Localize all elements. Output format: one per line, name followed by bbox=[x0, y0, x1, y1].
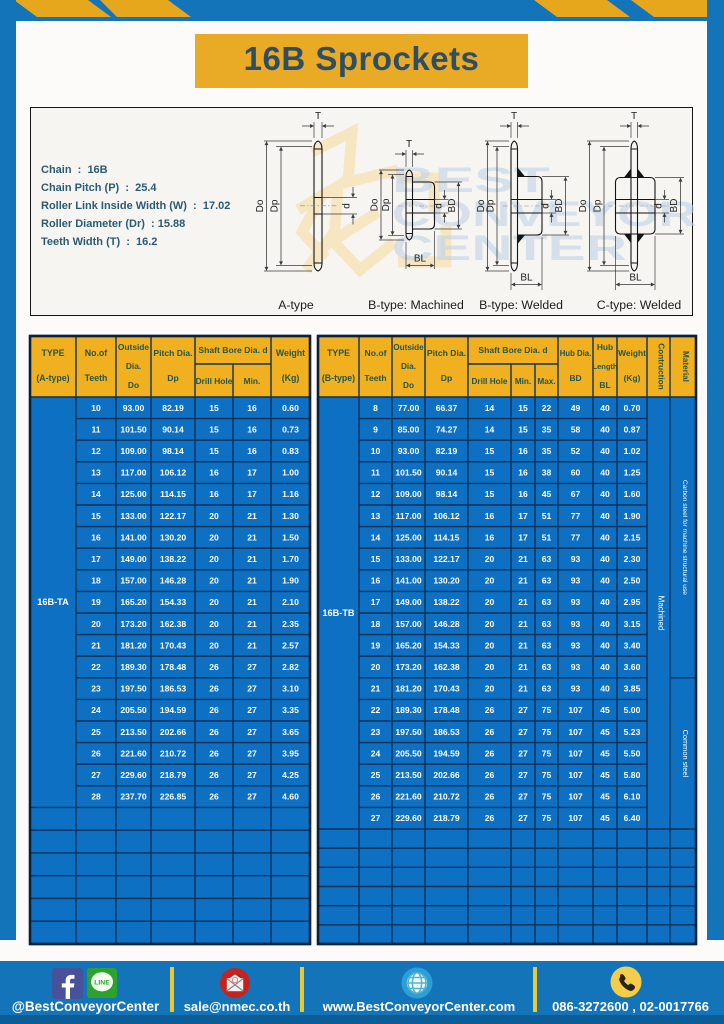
svg-text:2.82: 2.82 bbox=[282, 662, 299, 672]
svg-text:Do: Do bbox=[128, 380, 139, 390]
svg-text:1.16: 1.16 bbox=[282, 489, 299, 499]
svg-text:15: 15 bbox=[209, 403, 219, 413]
svg-text:0.83: 0.83 bbox=[282, 446, 299, 456]
svg-text:17: 17 bbox=[518, 532, 528, 542]
svg-text:BL: BL bbox=[520, 273, 533, 284]
svg-text:(Kg): (Kg) bbox=[282, 373, 300, 383]
svg-text:16: 16 bbox=[518, 468, 528, 478]
svg-text:63: 63 bbox=[542, 576, 552, 586]
svg-text:21: 21 bbox=[247, 511, 257, 521]
svg-text:107: 107 bbox=[568, 792, 583, 802]
svg-text:15: 15 bbox=[485, 446, 495, 456]
svg-text:75: 75 bbox=[542, 705, 552, 715]
svg-text:19: 19 bbox=[91, 597, 101, 607]
svg-text:21: 21 bbox=[247, 576, 257, 586]
svg-text:66.37: 66.37 bbox=[436, 403, 458, 413]
svg-text:26: 26 bbox=[209, 792, 219, 802]
svg-text:130.20: 130.20 bbox=[433, 576, 460, 586]
svg-text:2.35: 2.35 bbox=[282, 619, 299, 629]
svg-text:101.50: 101.50 bbox=[120, 424, 147, 434]
svg-text:157.00: 157.00 bbox=[395, 619, 422, 629]
svg-text:Dp: Dp bbox=[270, 199, 281, 212]
svg-text:117.00: 117.00 bbox=[396, 511, 422, 521]
svg-text:27: 27 bbox=[247, 792, 257, 802]
svg-text:186.53: 186.53 bbox=[433, 727, 460, 737]
svg-text:18: 18 bbox=[371, 619, 381, 629]
svg-text:45: 45 bbox=[600, 727, 610, 737]
svg-text:Do: Do bbox=[403, 381, 414, 390]
svg-text:2.57: 2.57 bbox=[282, 640, 299, 650]
svg-text:162.38: 162.38 bbox=[433, 662, 460, 672]
svg-text:20: 20 bbox=[485, 640, 495, 650]
svg-text:No.of: No.of bbox=[85, 348, 108, 358]
svg-text:20: 20 bbox=[485, 619, 495, 629]
svg-text:C-type: Welded: C-type: Welded bbox=[597, 298, 682, 312]
svg-text:26: 26 bbox=[485, 792, 495, 802]
svg-text:93: 93 bbox=[571, 640, 581, 650]
svg-text:3.65: 3.65 bbox=[282, 727, 299, 737]
svg-text:B-type: Welded: B-type: Welded bbox=[479, 298, 563, 312]
svg-text:No.of: No.of bbox=[365, 348, 387, 358]
svg-text:106.12: 106.12 bbox=[433, 511, 460, 521]
svg-text:26: 26 bbox=[209, 727, 219, 737]
svg-text:20: 20 bbox=[209, 532, 219, 542]
svg-text:3.15: 3.15 bbox=[624, 619, 641, 629]
svg-text:10: 10 bbox=[91, 403, 101, 413]
svg-text:107: 107 bbox=[568, 748, 583, 758]
svg-text:221.60: 221.60 bbox=[120, 748, 147, 758]
svg-text:165.20: 165.20 bbox=[120, 597, 147, 607]
svg-text:82.19: 82.19 bbox=[436, 446, 458, 456]
svg-text:27: 27 bbox=[247, 770, 257, 780]
svg-text:BD: BD bbox=[669, 199, 680, 213]
svg-text:20: 20 bbox=[209, 511, 219, 521]
svg-text:11: 11 bbox=[371, 468, 380, 478]
svg-text:107: 107 bbox=[568, 705, 583, 715]
svg-text:14: 14 bbox=[485, 424, 495, 434]
svg-text:40: 40 bbox=[600, 576, 610, 586]
svg-text:21: 21 bbox=[518, 662, 528, 672]
svg-text:40: 40 bbox=[600, 532, 610, 542]
svg-text:Common steel: Common steel bbox=[681, 730, 690, 778]
svg-text:226.85: 226.85 bbox=[160, 792, 187, 802]
svg-text:26: 26 bbox=[209, 748, 219, 758]
svg-text:1.50: 1.50 bbox=[282, 532, 299, 542]
svg-text:5.80: 5.80 bbox=[624, 770, 641, 780]
svg-text:15: 15 bbox=[485, 489, 495, 499]
svg-text:3.85: 3.85 bbox=[624, 684, 641, 694]
svg-text:Drill Hole: Drill Hole bbox=[472, 377, 508, 386]
svg-text:22: 22 bbox=[542, 403, 552, 413]
svg-text:107: 107 bbox=[568, 727, 583, 737]
svg-text:T: T bbox=[315, 111, 321, 122]
svg-text:154.33: 154.33 bbox=[160, 597, 187, 607]
svg-text:20: 20 bbox=[91, 619, 101, 629]
svg-text:170.43: 170.43 bbox=[160, 640, 187, 650]
svg-text:138.22: 138.22 bbox=[160, 554, 187, 564]
svg-text:141.00: 141.00 bbox=[120, 532, 147, 542]
svg-text:149.00: 149.00 bbox=[120, 554, 147, 564]
svg-text:93: 93 bbox=[571, 619, 581, 629]
svg-text:LINE: LINE bbox=[94, 980, 110, 987]
svg-text:16: 16 bbox=[518, 489, 528, 499]
svg-text:98.14: 98.14 bbox=[162, 446, 184, 456]
svg-text:1.30: 1.30 bbox=[282, 511, 299, 521]
svg-text:16: 16 bbox=[247, 424, 257, 434]
svg-text:Teeth: Teeth bbox=[85, 373, 108, 383]
svg-text:0.70: 0.70 bbox=[624, 403, 641, 413]
svg-text:16: 16 bbox=[247, 403, 257, 413]
svg-text:21: 21 bbox=[247, 597, 257, 607]
svg-text:d: d bbox=[434, 203, 445, 209]
svg-text:114.15: 114.15 bbox=[160, 489, 186, 499]
svg-text:93.00: 93.00 bbox=[398, 446, 420, 456]
svg-text:17: 17 bbox=[371, 597, 381, 607]
svg-text:27: 27 bbox=[247, 705, 257, 715]
svg-text:26: 26 bbox=[209, 684, 219, 694]
svg-text:93: 93 bbox=[571, 597, 581, 607]
svg-text:9: 9 bbox=[373, 424, 378, 434]
svg-text:3.10: 3.10 bbox=[282, 684, 299, 694]
svg-text:20: 20 bbox=[209, 597, 219, 607]
svg-text:45: 45 bbox=[600, 748, 610, 758]
svg-text:173.20: 173.20 bbox=[120, 619, 147, 629]
svg-text:16: 16 bbox=[485, 532, 495, 542]
svg-text:98.14: 98.14 bbox=[436, 489, 458, 499]
svg-text:22: 22 bbox=[371, 705, 381, 715]
svg-text:173.20: 173.20 bbox=[395, 662, 422, 672]
svg-text:101.50: 101.50 bbox=[395, 468, 422, 478]
svg-text:5.23: 5.23 bbox=[624, 727, 641, 737]
svg-text:16B-TB: 16B-TB bbox=[322, 608, 355, 618]
svg-text:14: 14 bbox=[485, 403, 495, 413]
svg-text:90.14: 90.14 bbox=[436, 468, 458, 478]
svg-text:3.95: 3.95 bbox=[282, 748, 299, 758]
svg-text:189.30: 189.30 bbox=[395, 705, 422, 715]
svg-text:149.00: 149.00 bbox=[395, 597, 422, 607]
svg-text:2.50: 2.50 bbox=[624, 576, 641, 586]
svg-text:21: 21 bbox=[247, 619, 257, 629]
svg-text:154.33: 154.33 bbox=[433, 640, 460, 650]
svg-text:21: 21 bbox=[247, 554, 257, 564]
svg-text:40: 40 bbox=[600, 640, 610, 650]
svg-text:221.60: 221.60 bbox=[395, 792, 422, 802]
svg-text:63: 63 bbox=[542, 640, 552, 650]
svg-text:18: 18 bbox=[91, 576, 101, 586]
svg-text:TYPE: TYPE bbox=[42, 348, 65, 358]
svg-text:Dia.: Dia. bbox=[401, 362, 416, 371]
svg-text:1.00: 1.00 bbox=[282, 468, 299, 478]
svg-text:16: 16 bbox=[371, 576, 381, 586]
svg-text:21: 21 bbox=[247, 640, 257, 650]
svg-text:Do: Do bbox=[578, 199, 589, 212]
svg-text:117.00: 117.00 bbox=[121, 468, 147, 478]
svg-text:205.50: 205.50 bbox=[395, 748, 422, 758]
svg-text:17: 17 bbox=[518, 511, 528, 521]
svg-text:45: 45 bbox=[600, 705, 610, 715]
svg-text:27: 27 bbox=[518, 705, 528, 715]
svg-text:27: 27 bbox=[247, 684, 257, 694]
svg-text:93.00: 93.00 bbox=[123, 403, 145, 413]
svg-text:Pitch Dia.: Pitch Dia. bbox=[153, 348, 192, 358]
svg-text:13: 13 bbox=[91, 468, 101, 478]
svg-text:Weight: Weight bbox=[276, 348, 305, 358]
svg-text:75: 75 bbox=[542, 727, 552, 737]
svg-text:181.20: 181.20 bbox=[395, 684, 422, 694]
svg-text:109.00: 109.00 bbox=[120, 446, 147, 456]
svg-text:21: 21 bbox=[518, 640, 528, 650]
svg-text:49: 49 bbox=[571, 403, 581, 413]
svg-text:20: 20 bbox=[209, 640, 219, 650]
svg-text:106.12: 106.12 bbox=[160, 468, 187, 478]
svg-text:20: 20 bbox=[485, 554, 495, 564]
svg-text:8: 8 bbox=[373, 403, 378, 413]
svg-text:B-type: Machined: B-type: Machined bbox=[368, 298, 464, 312]
svg-text:26: 26 bbox=[485, 748, 495, 758]
svg-text:2.30: 2.30 bbox=[624, 554, 641, 564]
svg-text:45: 45 bbox=[600, 792, 610, 802]
svg-text:93: 93 bbox=[571, 554, 581, 564]
svg-text:Carbon steel for machine str: Carbon steel for machine structural use bbox=[681, 480, 688, 595]
svg-text:218.79: 218.79 bbox=[433, 813, 460, 823]
svg-text:27: 27 bbox=[247, 662, 257, 672]
svg-text:60: 60 bbox=[571, 468, 581, 478]
svg-text:23: 23 bbox=[91, 684, 101, 694]
svg-text:d: d bbox=[342, 203, 353, 209]
svg-text:BD: BD bbox=[569, 373, 581, 383]
svg-text:Dp: Dp bbox=[167, 373, 178, 383]
svg-text:Max.: Max. bbox=[537, 377, 555, 386]
svg-text:22: 22 bbox=[91, 662, 101, 672]
svg-text:Material: Material bbox=[681, 351, 690, 382]
svg-text:141.00: 141.00 bbox=[395, 576, 422, 586]
svg-text:40: 40 bbox=[600, 554, 610, 564]
svg-text:(B-type): (B-type) bbox=[322, 373, 355, 383]
svg-text:77: 77 bbox=[571, 532, 581, 542]
svg-text:205.50: 205.50 bbox=[120, 705, 147, 715]
svg-text:40: 40 bbox=[600, 662, 610, 672]
svg-text:21: 21 bbox=[518, 554, 528, 564]
svg-text:26: 26 bbox=[485, 705, 495, 715]
svg-text:40: 40 bbox=[600, 403, 610, 413]
svg-text:67: 67 bbox=[571, 489, 581, 499]
svg-text:BD: BD bbox=[554, 199, 565, 213]
svg-text:202.66: 202.66 bbox=[160, 727, 187, 737]
svg-text:Min.: Min. bbox=[515, 377, 531, 386]
svg-text:194.59: 194.59 bbox=[433, 748, 460, 758]
svg-text:Min.: Min. bbox=[244, 376, 261, 386]
svg-text:Pitch Dia.: Pitch Dia. bbox=[427, 348, 466, 358]
svg-text:63: 63 bbox=[542, 619, 552, 629]
svg-text:d: d bbox=[541, 203, 552, 209]
svg-text:178.48: 178.48 bbox=[433, 705, 460, 715]
svg-text:27: 27 bbox=[371, 813, 381, 823]
svg-text:125.00: 125.00 bbox=[120, 489, 147, 499]
svg-text:197.50: 197.50 bbox=[395, 727, 422, 737]
svg-text:75: 75 bbox=[542, 770, 552, 780]
svg-text:26: 26 bbox=[209, 770, 219, 780]
svg-text:BL: BL bbox=[629, 273, 642, 284]
svg-text:20: 20 bbox=[371, 662, 381, 672]
svg-text:2.95: 2.95 bbox=[624, 597, 641, 607]
svg-text:Dp: Dp bbox=[486, 199, 497, 212]
svg-text:26: 26 bbox=[91, 748, 101, 758]
svg-text:27: 27 bbox=[91, 770, 101, 780]
svg-text:3.40: 3.40 bbox=[624, 640, 641, 650]
svg-text:3.35: 3.35 bbox=[282, 705, 299, 715]
svg-text:Teeth: Teeth bbox=[364, 373, 386, 383]
svg-text:189.30: 189.30 bbox=[120, 662, 147, 672]
svg-text:63: 63 bbox=[542, 554, 552, 564]
svg-text:93: 93 bbox=[571, 684, 581, 694]
svg-text:75: 75 bbox=[542, 813, 552, 823]
svg-text:77.00: 77.00 bbox=[398, 403, 420, 413]
svg-text:21: 21 bbox=[371, 684, 381, 694]
svg-text:20: 20 bbox=[209, 619, 219, 629]
svg-text:T: T bbox=[511, 111, 517, 122]
svg-text:23: 23 bbox=[371, 727, 381, 737]
svg-text:130.20: 130.20 bbox=[160, 532, 187, 542]
svg-text:202.66: 202.66 bbox=[433, 770, 460, 780]
svg-text:d: d bbox=[654, 203, 665, 209]
svg-text:2.15: 2.15 bbox=[624, 532, 641, 542]
svg-text:178.48: 178.48 bbox=[160, 662, 187, 672]
svg-text:213.50: 213.50 bbox=[120, 727, 147, 737]
svg-text:74.27: 74.27 bbox=[436, 424, 458, 434]
svg-text:1.02: 1.02 bbox=[624, 446, 641, 456]
svg-text:21: 21 bbox=[247, 532, 257, 542]
svg-text:11: 11 bbox=[91, 424, 100, 434]
svg-text:157.00: 157.00 bbox=[120, 576, 147, 586]
svg-text:16: 16 bbox=[518, 446, 528, 456]
svg-text:26: 26 bbox=[209, 662, 219, 672]
svg-text:21: 21 bbox=[518, 597, 528, 607]
svg-text:63: 63 bbox=[542, 597, 552, 607]
svg-text:45: 45 bbox=[542, 489, 552, 499]
svg-text:85.00: 85.00 bbox=[398, 424, 420, 434]
svg-text:93: 93 bbox=[571, 576, 581, 586]
svg-text:229.60: 229.60 bbox=[120, 770, 147, 780]
svg-text:0.60: 0.60 bbox=[282, 403, 299, 413]
svg-text:40: 40 bbox=[600, 489, 610, 499]
svg-text:27: 27 bbox=[518, 813, 528, 823]
svg-text:24: 24 bbox=[371, 748, 381, 758]
svg-text:38: 38 bbox=[542, 468, 552, 478]
svg-text:35: 35 bbox=[542, 446, 552, 456]
svg-text:45: 45 bbox=[600, 770, 610, 780]
svg-text:162.38: 162.38 bbox=[160, 619, 187, 629]
svg-text:45: 45 bbox=[600, 813, 610, 823]
svg-text:10: 10 bbox=[371, 446, 381, 456]
svg-text:27: 27 bbox=[518, 792, 528, 802]
svg-text:20: 20 bbox=[209, 554, 219, 564]
svg-text:Dp: Dp bbox=[593, 199, 604, 212]
svg-text:122.17: 122.17 bbox=[433, 554, 460, 564]
svg-text:T: T bbox=[631, 111, 637, 122]
svg-text:237.70: 237.70 bbox=[120, 792, 147, 802]
svg-text:20: 20 bbox=[485, 684, 495, 694]
svg-text:82.19: 82.19 bbox=[162, 403, 184, 413]
svg-text:26: 26 bbox=[209, 705, 219, 715]
svg-text:213.50: 213.50 bbox=[395, 770, 422, 780]
svg-text:16: 16 bbox=[485, 511, 495, 521]
svg-text:21: 21 bbox=[518, 619, 528, 629]
svg-text:210.72: 210.72 bbox=[160, 748, 187, 758]
svg-text:63: 63 bbox=[542, 662, 552, 672]
svg-text:114.15: 114.15 bbox=[434, 532, 460, 542]
svg-text:15: 15 bbox=[518, 403, 528, 413]
svg-text:17: 17 bbox=[247, 489, 257, 499]
svg-text:27: 27 bbox=[518, 770, 528, 780]
svg-text:16: 16 bbox=[209, 489, 219, 499]
svg-text:5.50: 5.50 bbox=[624, 748, 641, 758]
svg-text:138.22: 138.22 bbox=[433, 597, 460, 607]
svg-text:21: 21 bbox=[518, 684, 528, 694]
svg-text:218.79: 218.79 bbox=[160, 770, 187, 780]
svg-text:93: 93 bbox=[571, 662, 581, 672]
svg-text:146.28: 146.28 bbox=[160, 576, 187, 586]
svg-text:BD: BD bbox=[447, 199, 458, 213]
svg-text:Outside: Outside bbox=[118, 342, 150, 352]
svg-text:13: 13 bbox=[371, 511, 381, 521]
svg-text:15: 15 bbox=[209, 446, 219, 456]
svg-text:40: 40 bbox=[600, 468, 610, 478]
svg-text:122.17: 122.17 bbox=[160, 511, 187, 521]
svg-text:A-type: A-type bbox=[278, 298, 314, 312]
svg-text:Weight: Weight bbox=[618, 348, 646, 358]
svg-text:1.90: 1.90 bbox=[282, 576, 299, 586]
svg-text:40: 40 bbox=[600, 446, 610, 456]
svg-text:3.60: 3.60 bbox=[624, 662, 641, 672]
svg-text:35: 35 bbox=[542, 424, 552, 434]
svg-text:40: 40 bbox=[600, 511, 610, 521]
svg-text:229.60: 229.60 bbox=[395, 813, 422, 823]
svg-text:109.00: 109.00 bbox=[395, 489, 422, 499]
svg-text:90.14: 90.14 bbox=[162, 424, 184, 434]
svg-text:20: 20 bbox=[485, 662, 495, 672]
svg-text:Dia.: Dia. bbox=[126, 361, 141, 371]
svg-text:20: 20 bbox=[209, 576, 219, 586]
svg-text:TYPE: TYPE bbox=[327, 348, 350, 358]
svg-text:Do: Do bbox=[255, 199, 266, 212]
svg-text:51: 51 bbox=[542, 532, 552, 542]
svg-text:27: 27 bbox=[247, 748, 257, 758]
svg-text:15: 15 bbox=[518, 424, 528, 434]
svg-text:16: 16 bbox=[247, 446, 257, 456]
svg-text:26: 26 bbox=[485, 813, 495, 823]
svg-text:20: 20 bbox=[485, 597, 495, 607]
svg-text:21: 21 bbox=[518, 576, 528, 586]
svg-text:16B-TA: 16B-TA bbox=[37, 597, 69, 607]
svg-text:16: 16 bbox=[209, 468, 219, 478]
svg-text:Length: Length bbox=[593, 362, 618, 371]
svg-text:40: 40 bbox=[600, 619, 610, 629]
svg-text:27: 27 bbox=[518, 727, 528, 737]
svg-text:146.28: 146.28 bbox=[433, 619, 460, 629]
svg-text:(Kg): (Kg) bbox=[624, 373, 641, 383]
svg-text:133.00: 133.00 bbox=[120, 511, 147, 521]
svg-text:Do: Do bbox=[370, 198, 381, 211]
svg-text:15: 15 bbox=[91, 511, 101, 521]
svg-text:194.59: 194.59 bbox=[160, 705, 187, 715]
svg-text:1.90: 1.90 bbox=[624, 511, 641, 521]
svg-text:6.40: 6.40 bbox=[624, 813, 641, 823]
svg-text:CENTER: CENTER bbox=[392, 229, 627, 268]
svg-text:186.53: 186.53 bbox=[160, 684, 187, 694]
svg-text:BL: BL bbox=[414, 254, 427, 265]
svg-text:28: 28 bbox=[91, 792, 101, 802]
svg-text:(A-type): (A-type) bbox=[36, 373, 69, 383]
